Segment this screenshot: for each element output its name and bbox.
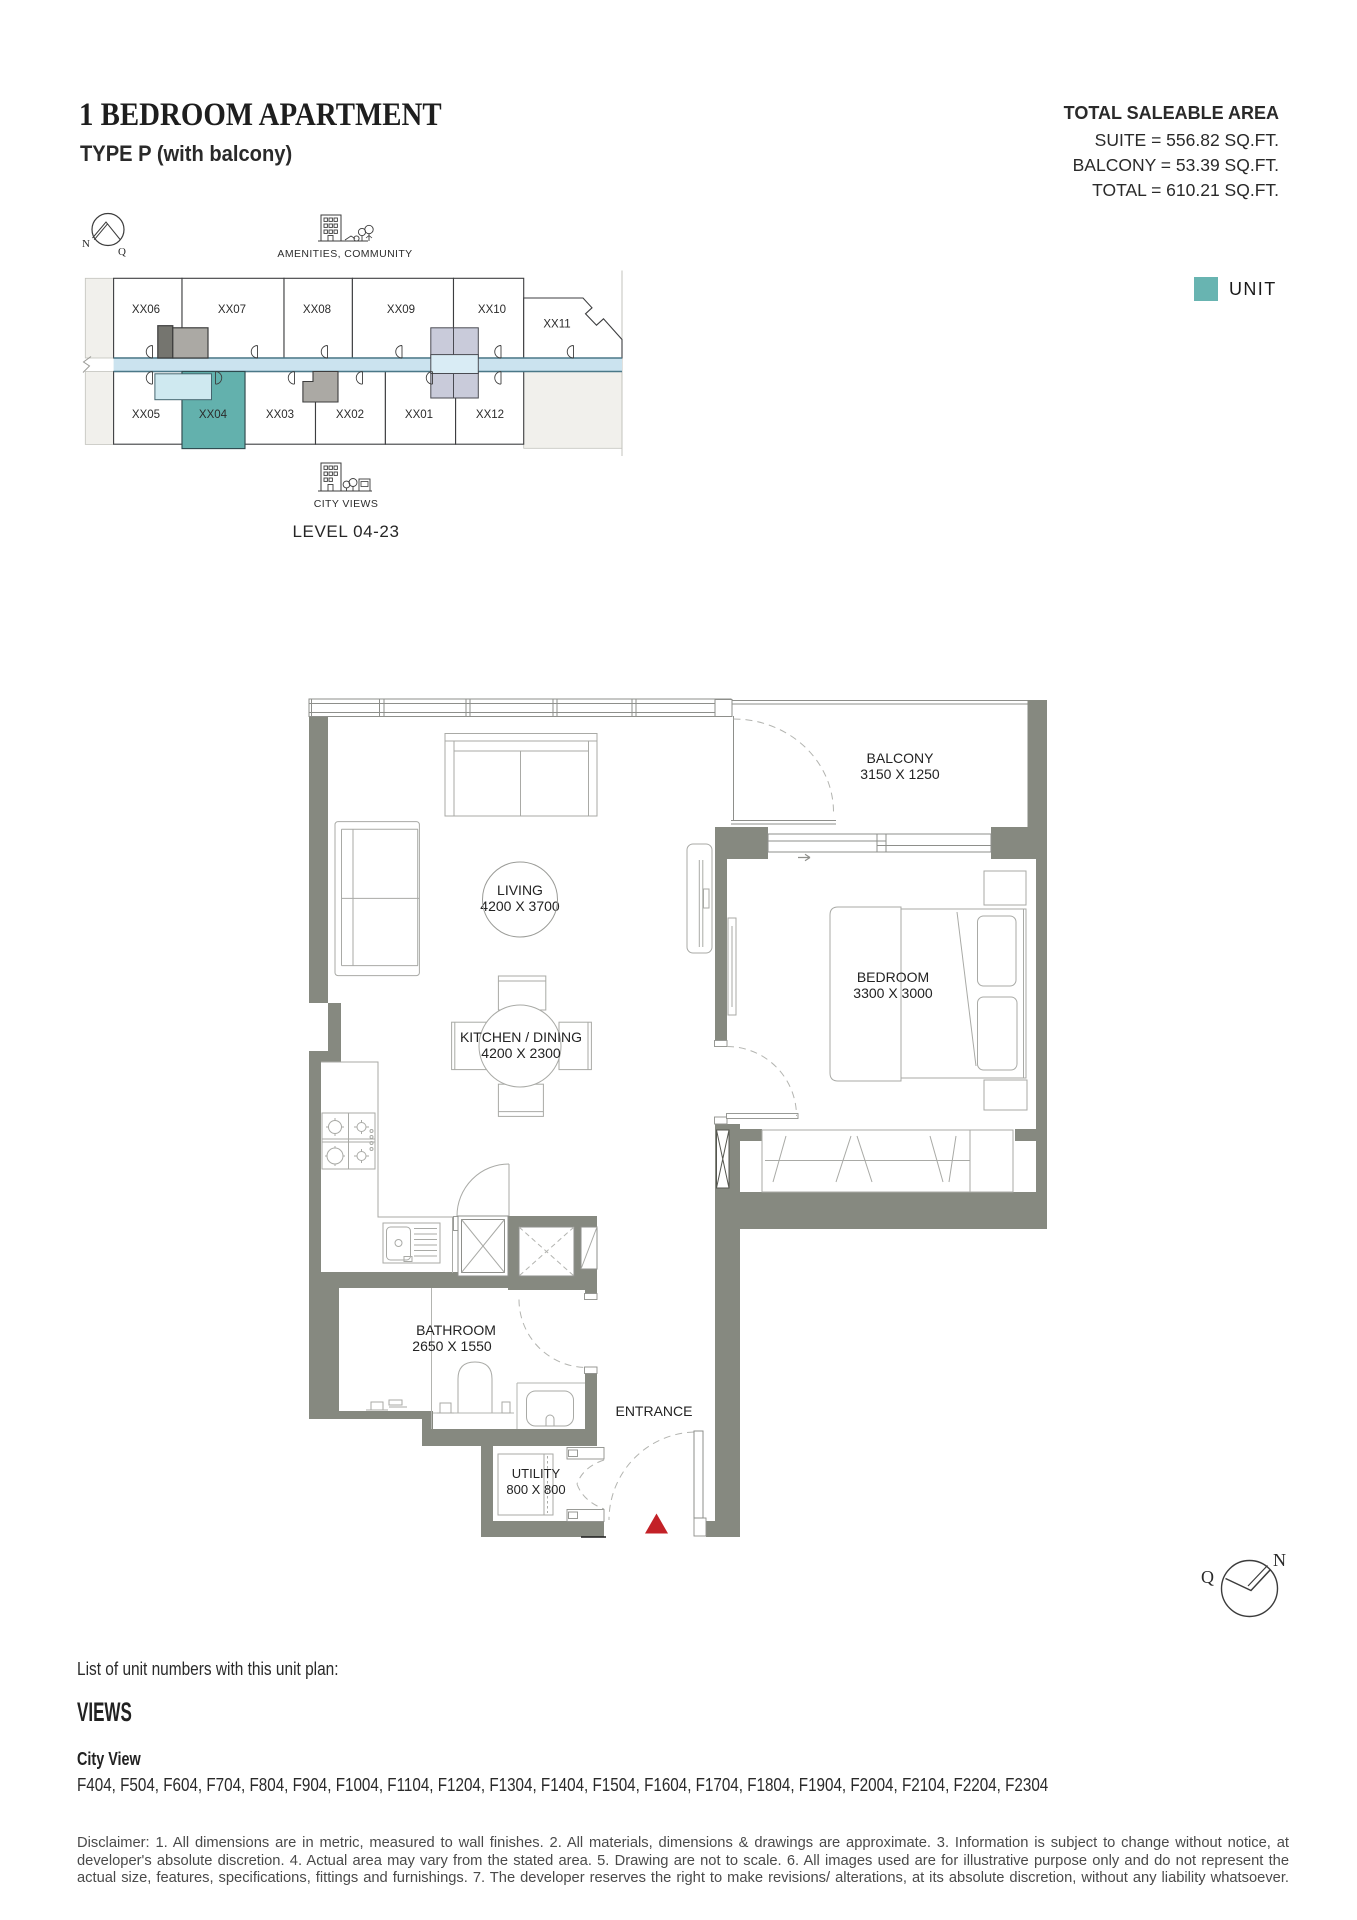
svg-text:4200 X 2300: 4200 X 2300 [481, 1045, 561, 1061]
svg-text:BEDROOM: BEDROOM [857, 969, 929, 985]
svg-text:XX12: XX12 [476, 409, 504, 421]
svg-text:2650 X 1550: 2650 X 1550 [412, 1338, 492, 1354]
svg-text:Q: Q [118, 246, 126, 258]
svg-text:BALCONY: BALCONY [867, 750, 935, 766]
svg-text:XX10: XX10 [478, 304, 506, 316]
svg-text:XX09: XX09 [387, 304, 415, 316]
svg-text:BATHROOM: BATHROOM [416, 1322, 496, 1338]
svg-text:XX05: XX05 [132, 409, 160, 421]
svg-text:XX02: XX02 [336, 409, 364, 421]
svg-text:4200 X 3700: 4200 X 3700 [480, 898, 560, 914]
svg-text:KITCHEN / DINING: KITCHEN / DINING [460, 1029, 582, 1045]
svg-text:XX01: XX01 [405, 409, 433, 421]
svg-text:3150 X 1250: 3150 X 1250 [860, 766, 940, 782]
svg-text:XX07: XX07 [218, 304, 246, 316]
svg-text:ENTRANCE: ENTRANCE [615, 1403, 692, 1419]
svg-text:3300 X 3000: 3300 X 3000 [853, 985, 933, 1001]
svg-text:N: N [82, 238, 90, 250]
svg-text:XX08: XX08 [303, 304, 331, 316]
svg-text:LIVING: LIVING [497, 882, 543, 898]
svg-text:XX06: XX06 [132, 304, 160, 316]
svg-text:XX04: XX04 [199, 409, 228, 421]
svg-text:800 X 800: 800 X 800 [506, 1482, 565, 1497]
svg-text:Q: Q [1201, 1567, 1214, 1587]
svg-text:UTILITY: UTILITY [512, 1466, 561, 1481]
svg-text:N: N [1273, 1550, 1286, 1570]
svg-text:XX11: XX11 [543, 319, 570, 331]
svg-text:XX03: XX03 [266, 409, 294, 421]
